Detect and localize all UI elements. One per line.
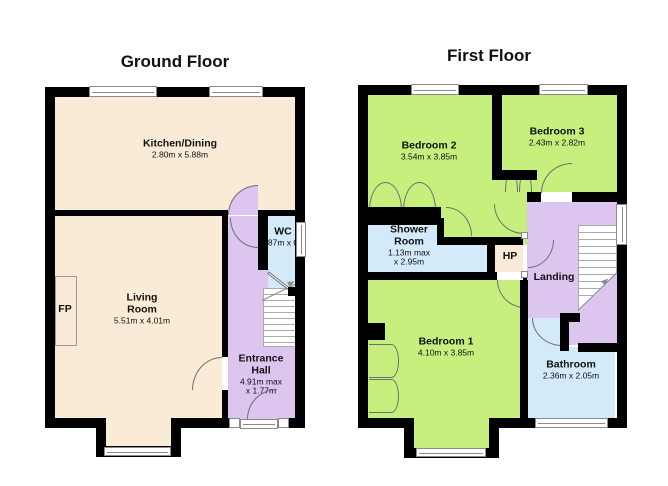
ground-wall xyxy=(222,216,228,357)
first-label-bedroom-3: Bedroom 32.43m x 2.82m xyxy=(529,126,585,147)
ground-stair-tread xyxy=(264,312,295,313)
ground-wall xyxy=(54,210,228,216)
first-label-bathroom: Bathroom2.36m x 2.05m xyxy=(543,359,599,380)
ground-window-midline xyxy=(107,452,168,453)
ground-wall xyxy=(45,87,55,428)
first-wardrobe-door-arc xyxy=(369,344,399,378)
first-door-jamb xyxy=(521,271,528,278)
first-wall xyxy=(499,418,536,428)
first-wall xyxy=(437,237,523,245)
ground-window-midline xyxy=(212,92,260,93)
ground-wall xyxy=(295,87,305,428)
first-stair-tread xyxy=(579,253,616,254)
ground-stair-tread xyxy=(264,342,295,343)
first-window xyxy=(416,448,486,457)
ground-window-midline xyxy=(243,424,275,425)
ground-stair-tread xyxy=(264,330,295,331)
first-label-hp: HP xyxy=(503,251,518,263)
first-label-bedroom-1: Bedroom 14.10m x 3.85m xyxy=(418,336,474,357)
first-window xyxy=(535,418,608,428)
ground-window xyxy=(240,419,278,429)
first-wall xyxy=(578,343,617,352)
first-label-shower-room: ShowerRoom1.13m maxx 2.95m xyxy=(388,225,430,268)
first-wall xyxy=(358,272,497,280)
first-stair-tread xyxy=(579,232,616,233)
first-label-landing: Landing xyxy=(534,272,575,284)
first-window xyxy=(539,84,588,95)
first-wall xyxy=(520,280,528,422)
ground-window xyxy=(209,86,263,97)
first-window xyxy=(411,84,459,95)
first-window-midline xyxy=(622,207,623,242)
ground-wall xyxy=(258,216,268,270)
ground-stair-tread xyxy=(264,318,295,319)
first-wall xyxy=(617,85,627,428)
first-stair-tread xyxy=(579,260,616,261)
first-wall xyxy=(492,170,537,180)
ground-wall xyxy=(288,287,305,296)
first-stair-tread xyxy=(579,246,616,247)
first-wall xyxy=(367,323,385,340)
ground-window-midline xyxy=(92,92,154,93)
ground-window xyxy=(104,447,171,456)
ground-stair-tread xyxy=(264,324,295,325)
first-window-midline xyxy=(414,90,456,91)
first-wall xyxy=(572,192,617,202)
first-room-shower-room-ext xyxy=(437,245,487,272)
first-window-midline xyxy=(542,90,585,91)
first-wall xyxy=(560,313,569,351)
first-door-jamb xyxy=(521,232,528,239)
ground-window xyxy=(89,86,157,97)
first-wall xyxy=(489,418,499,458)
ground-wall xyxy=(45,87,305,97)
ground-window-midline xyxy=(301,225,302,254)
ground-stair-tread xyxy=(264,306,295,307)
first-window xyxy=(616,204,627,245)
first-window-midline xyxy=(538,423,605,424)
first-floor-title: First Floor xyxy=(447,46,531,66)
first-label-bedroom-2: Bedroom 23.54m x 3.85m xyxy=(401,140,457,161)
ground-wall xyxy=(181,418,229,428)
first-wall xyxy=(607,418,627,428)
first-room-bedroom-1-bay xyxy=(414,419,490,448)
ground-stair-tread xyxy=(264,336,295,337)
ground-room-living-room-bay xyxy=(106,419,171,447)
ground-wall xyxy=(289,418,305,428)
ground-wall xyxy=(222,390,228,418)
first-stair-tread xyxy=(579,267,616,268)
first-wall xyxy=(358,207,441,225)
first-stair-tread xyxy=(579,239,616,240)
first-wardrobe-door-arc xyxy=(369,379,399,413)
ground-label-kitchen-dining: Kitchen/Dining2.80m x 5.88m xyxy=(143,138,217,159)
ground-stair-tread xyxy=(264,300,295,301)
first-window-midline xyxy=(419,453,483,454)
ground-floor-title: Ground Floor xyxy=(121,52,230,72)
first-stair-tread xyxy=(579,274,616,275)
floorplan-canvas: Ground Floor First Floor Kitchen/Dining2… xyxy=(0,0,668,486)
first-wall xyxy=(492,85,502,180)
ground-door-jamb xyxy=(278,418,289,428)
ground-window xyxy=(296,222,306,257)
first-wall xyxy=(527,192,541,202)
first-wall xyxy=(358,85,368,428)
ground-wall xyxy=(171,418,181,457)
ground-label-fireplace: FP xyxy=(58,304,71,316)
ground-door-jamb xyxy=(229,418,240,428)
ground-label-living-room: LivingRoom5.51m x 4.01m xyxy=(114,292,170,325)
